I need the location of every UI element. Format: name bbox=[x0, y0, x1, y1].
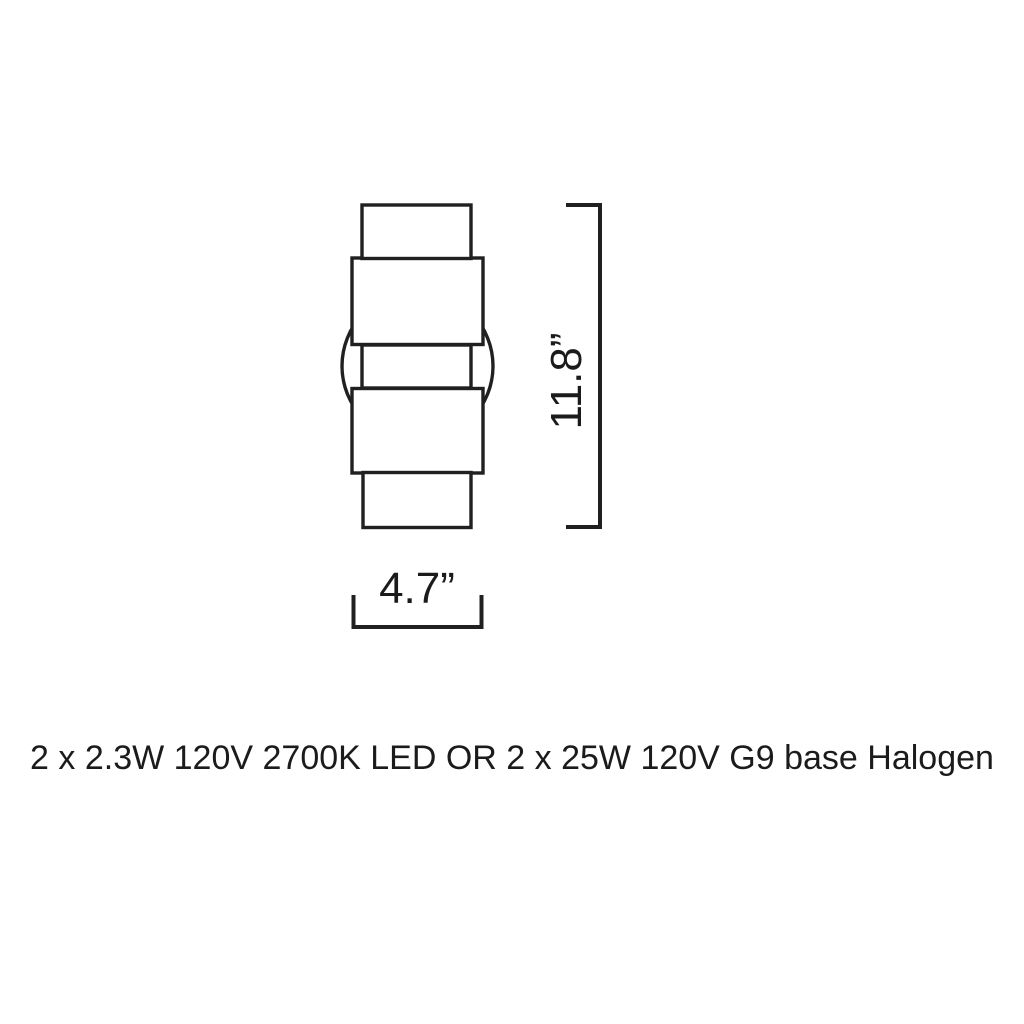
fixture-top-cap bbox=[362, 205, 471, 259]
fixture-bottom-cap bbox=[363, 473, 471, 528]
lamping-spec-text: 2 x 2.3W 120V 2700K LED OR 2 x 25W 120V … bbox=[0, 741, 1024, 775]
fixture-line-drawing bbox=[0, 0, 1024, 1024]
fixture-upper-body bbox=[352, 258, 483, 345]
fixture-middle-section bbox=[362, 345, 471, 388]
width-dimension-label: 4.7” bbox=[317, 566, 517, 612]
fixture-lower-body bbox=[352, 389, 483, 474]
dimension-diagram-canvas: 11.8” 4.7” 2 x 2.3W 120V 2700K LED OR 2 … bbox=[0, 0, 1024, 1024]
height-dimension-label: 11.8” bbox=[544, 319, 590, 443]
